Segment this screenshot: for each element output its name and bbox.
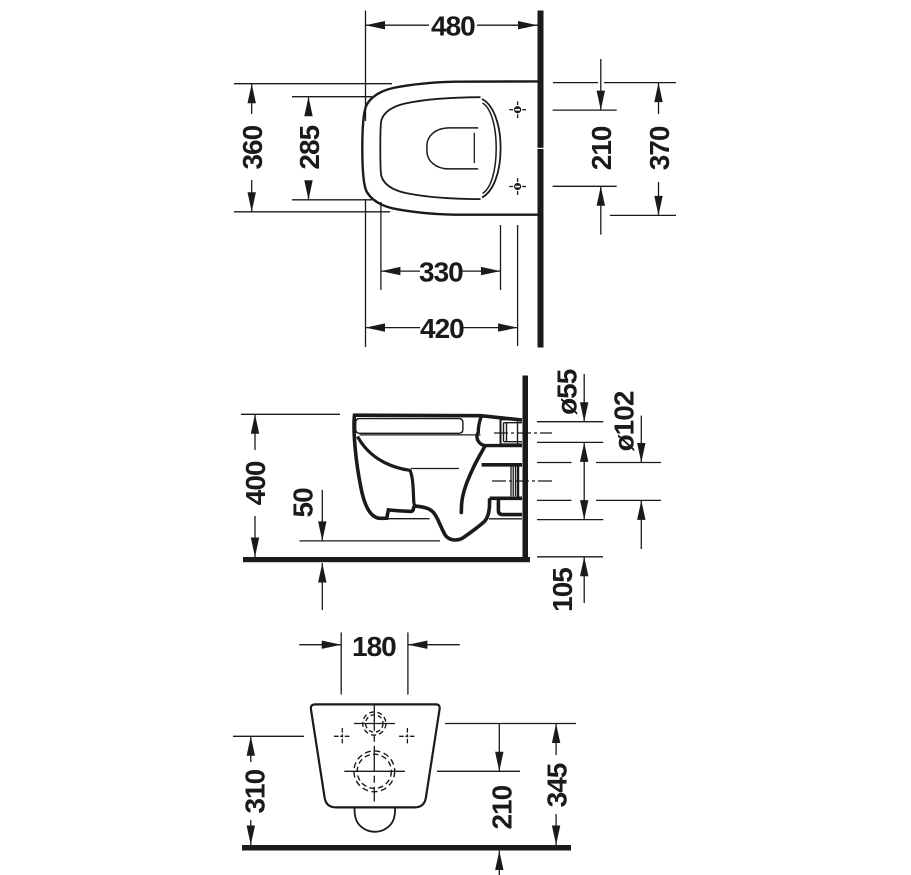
svg-text:50: 50: [288, 488, 319, 518]
svg-text:285: 285: [294, 125, 325, 169]
svg-text:480: 480: [431, 11, 475, 42]
svg-text:360: 360: [237, 125, 268, 169]
svg-text:ø102: ø102: [609, 391, 640, 451]
svg-text:400: 400: [240, 461, 271, 505]
svg-text:ø55: ø55: [552, 369, 583, 415]
svg-text:210: 210: [487, 785, 518, 829]
svg-text:105: 105: [547, 568, 578, 612]
svg-text:345: 345: [541, 763, 572, 807]
svg-text:310: 310: [240, 769, 271, 813]
svg-text:330: 330: [419, 257, 463, 288]
svg-text:420: 420: [420, 313, 464, 344]
svg-text:180: 180: [352, 631, 396, 662]
svg-text:210: 210: [586, 126, 617, 170]
svg-text:370: 370: [644, 126, 675, 170]
